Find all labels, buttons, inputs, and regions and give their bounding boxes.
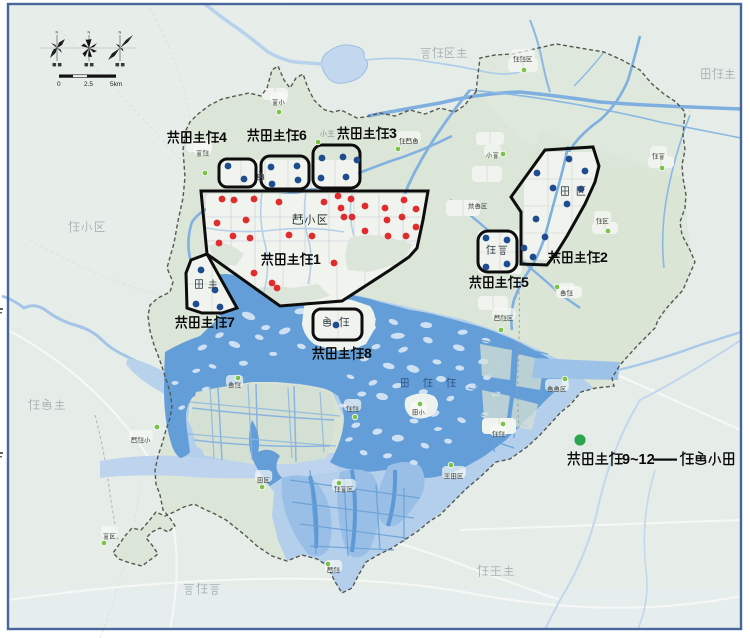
svg-text:9~12: 9~12: [622, 452, 655, 468]
svg-text:0: 0: [57, 81, 61, 88]
svg-text:N: N: [119, 31, 122, 35]
svg-text:N: N: [88, 31, 91, 35]
svg-text:2.5: 2.5: [84, 81, 93, 88]
svg-text:7: 7: [227, 314, 235, 330]
svg-text:6: 6: [299, 127, 307, 143]
svg-text:5km: 5km: [110, 81, 122, 88]
svg-text:2: 2: [600, 249, 608, 265]
svg-text:N: N: [56, 31, 59, 35]
svg-text:3: 3: [389, 125, 397, 141]
svg-text:4: 4: [219, 129, 227, 145]
svg-text:5: 5: [521, 274, 529, 290]
svg-text:1: 1: [313, 251, 321, 267]
svg-text:8: 8: [364, 345, 372, 361]
